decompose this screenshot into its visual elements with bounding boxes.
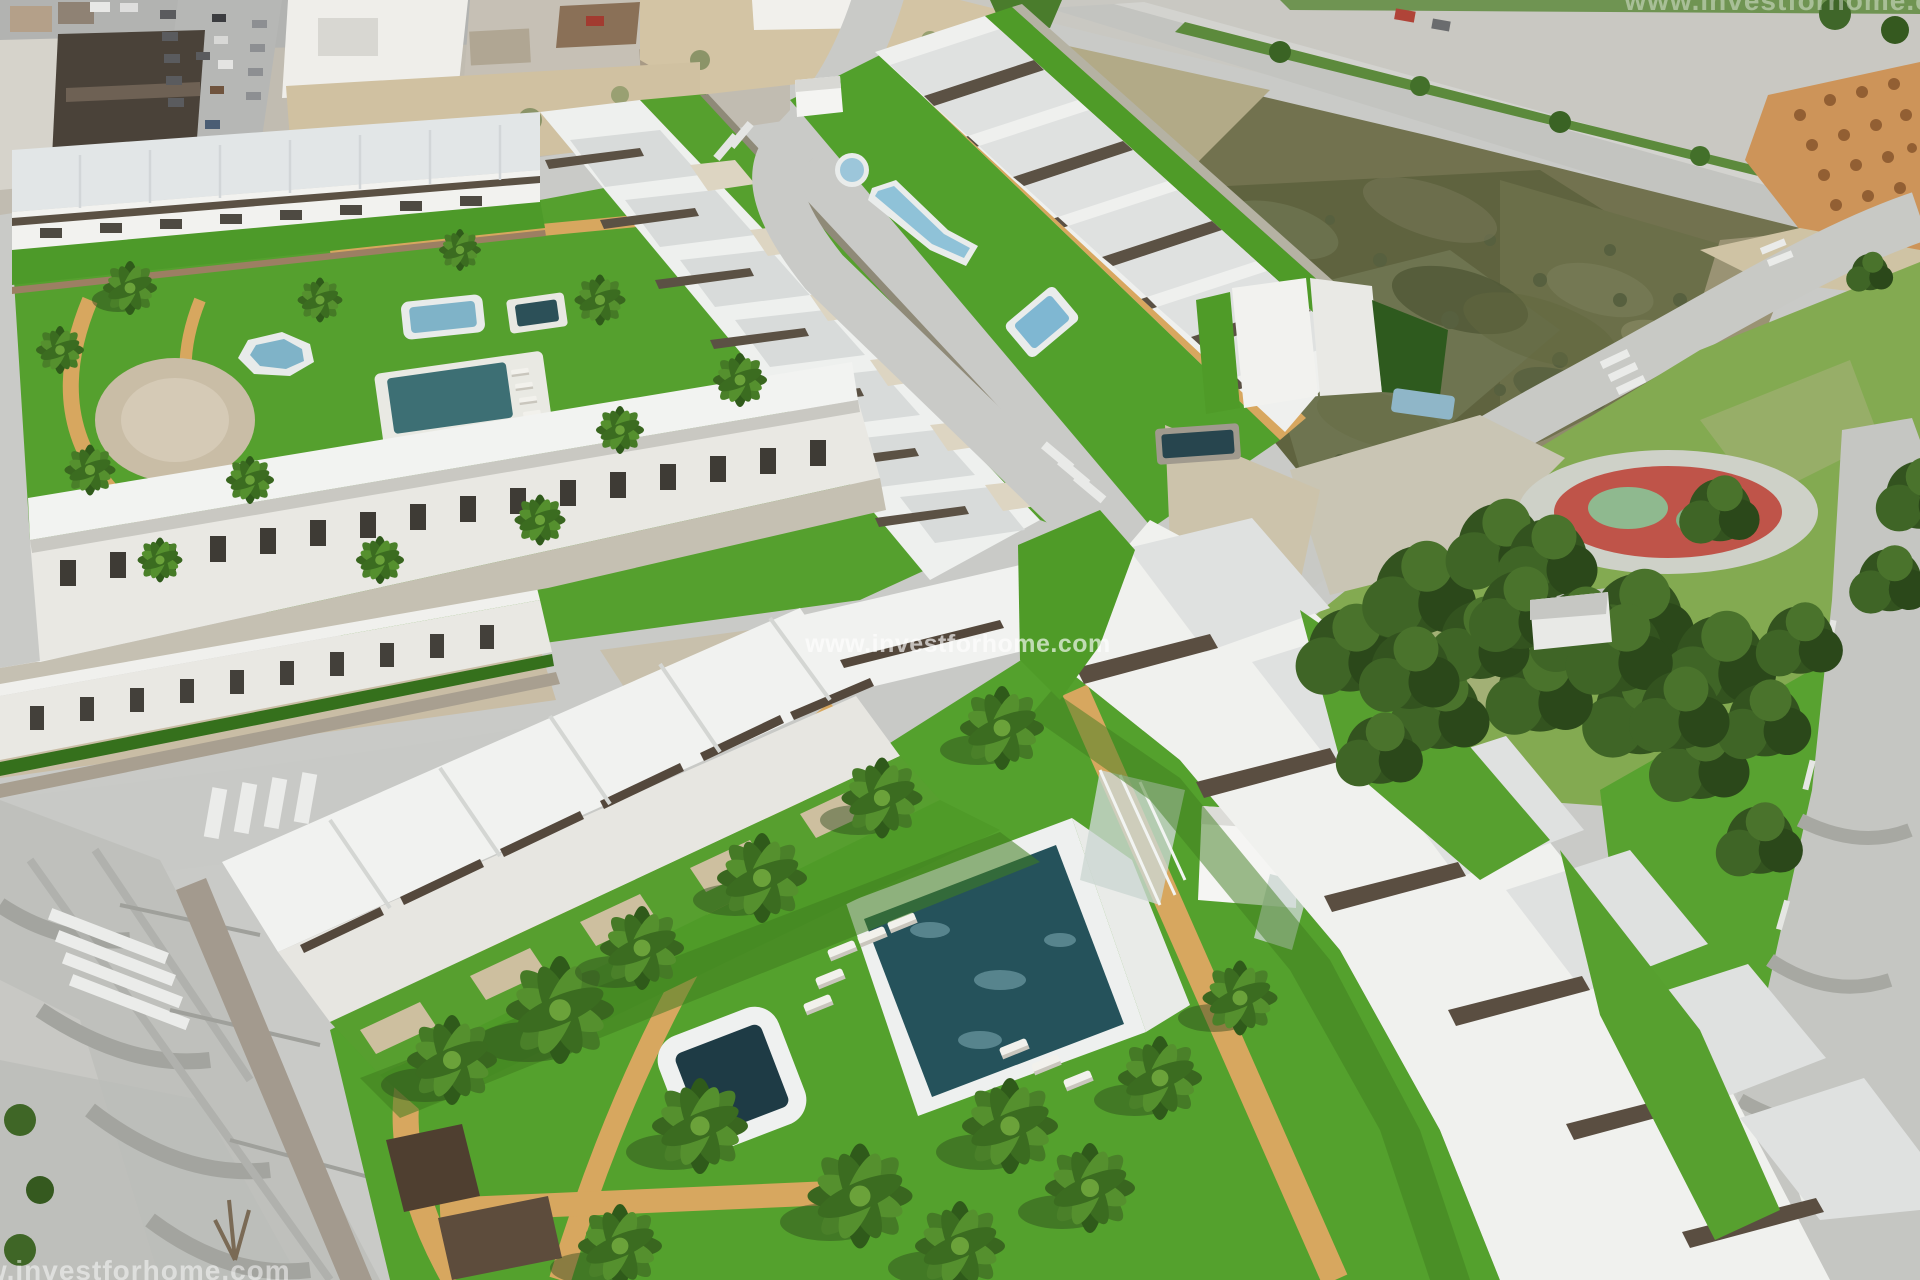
svg-text:www.investforhome.com: www.investforhome.com <box>0 1255 291 1280</box>
svg-text:www.investforhome.com: www.investforhome.com <box>1623 0 1920 16</box>
svg-text:www.investforhome.com: www.investforhome.com <box>804 630 1110 658</box>
